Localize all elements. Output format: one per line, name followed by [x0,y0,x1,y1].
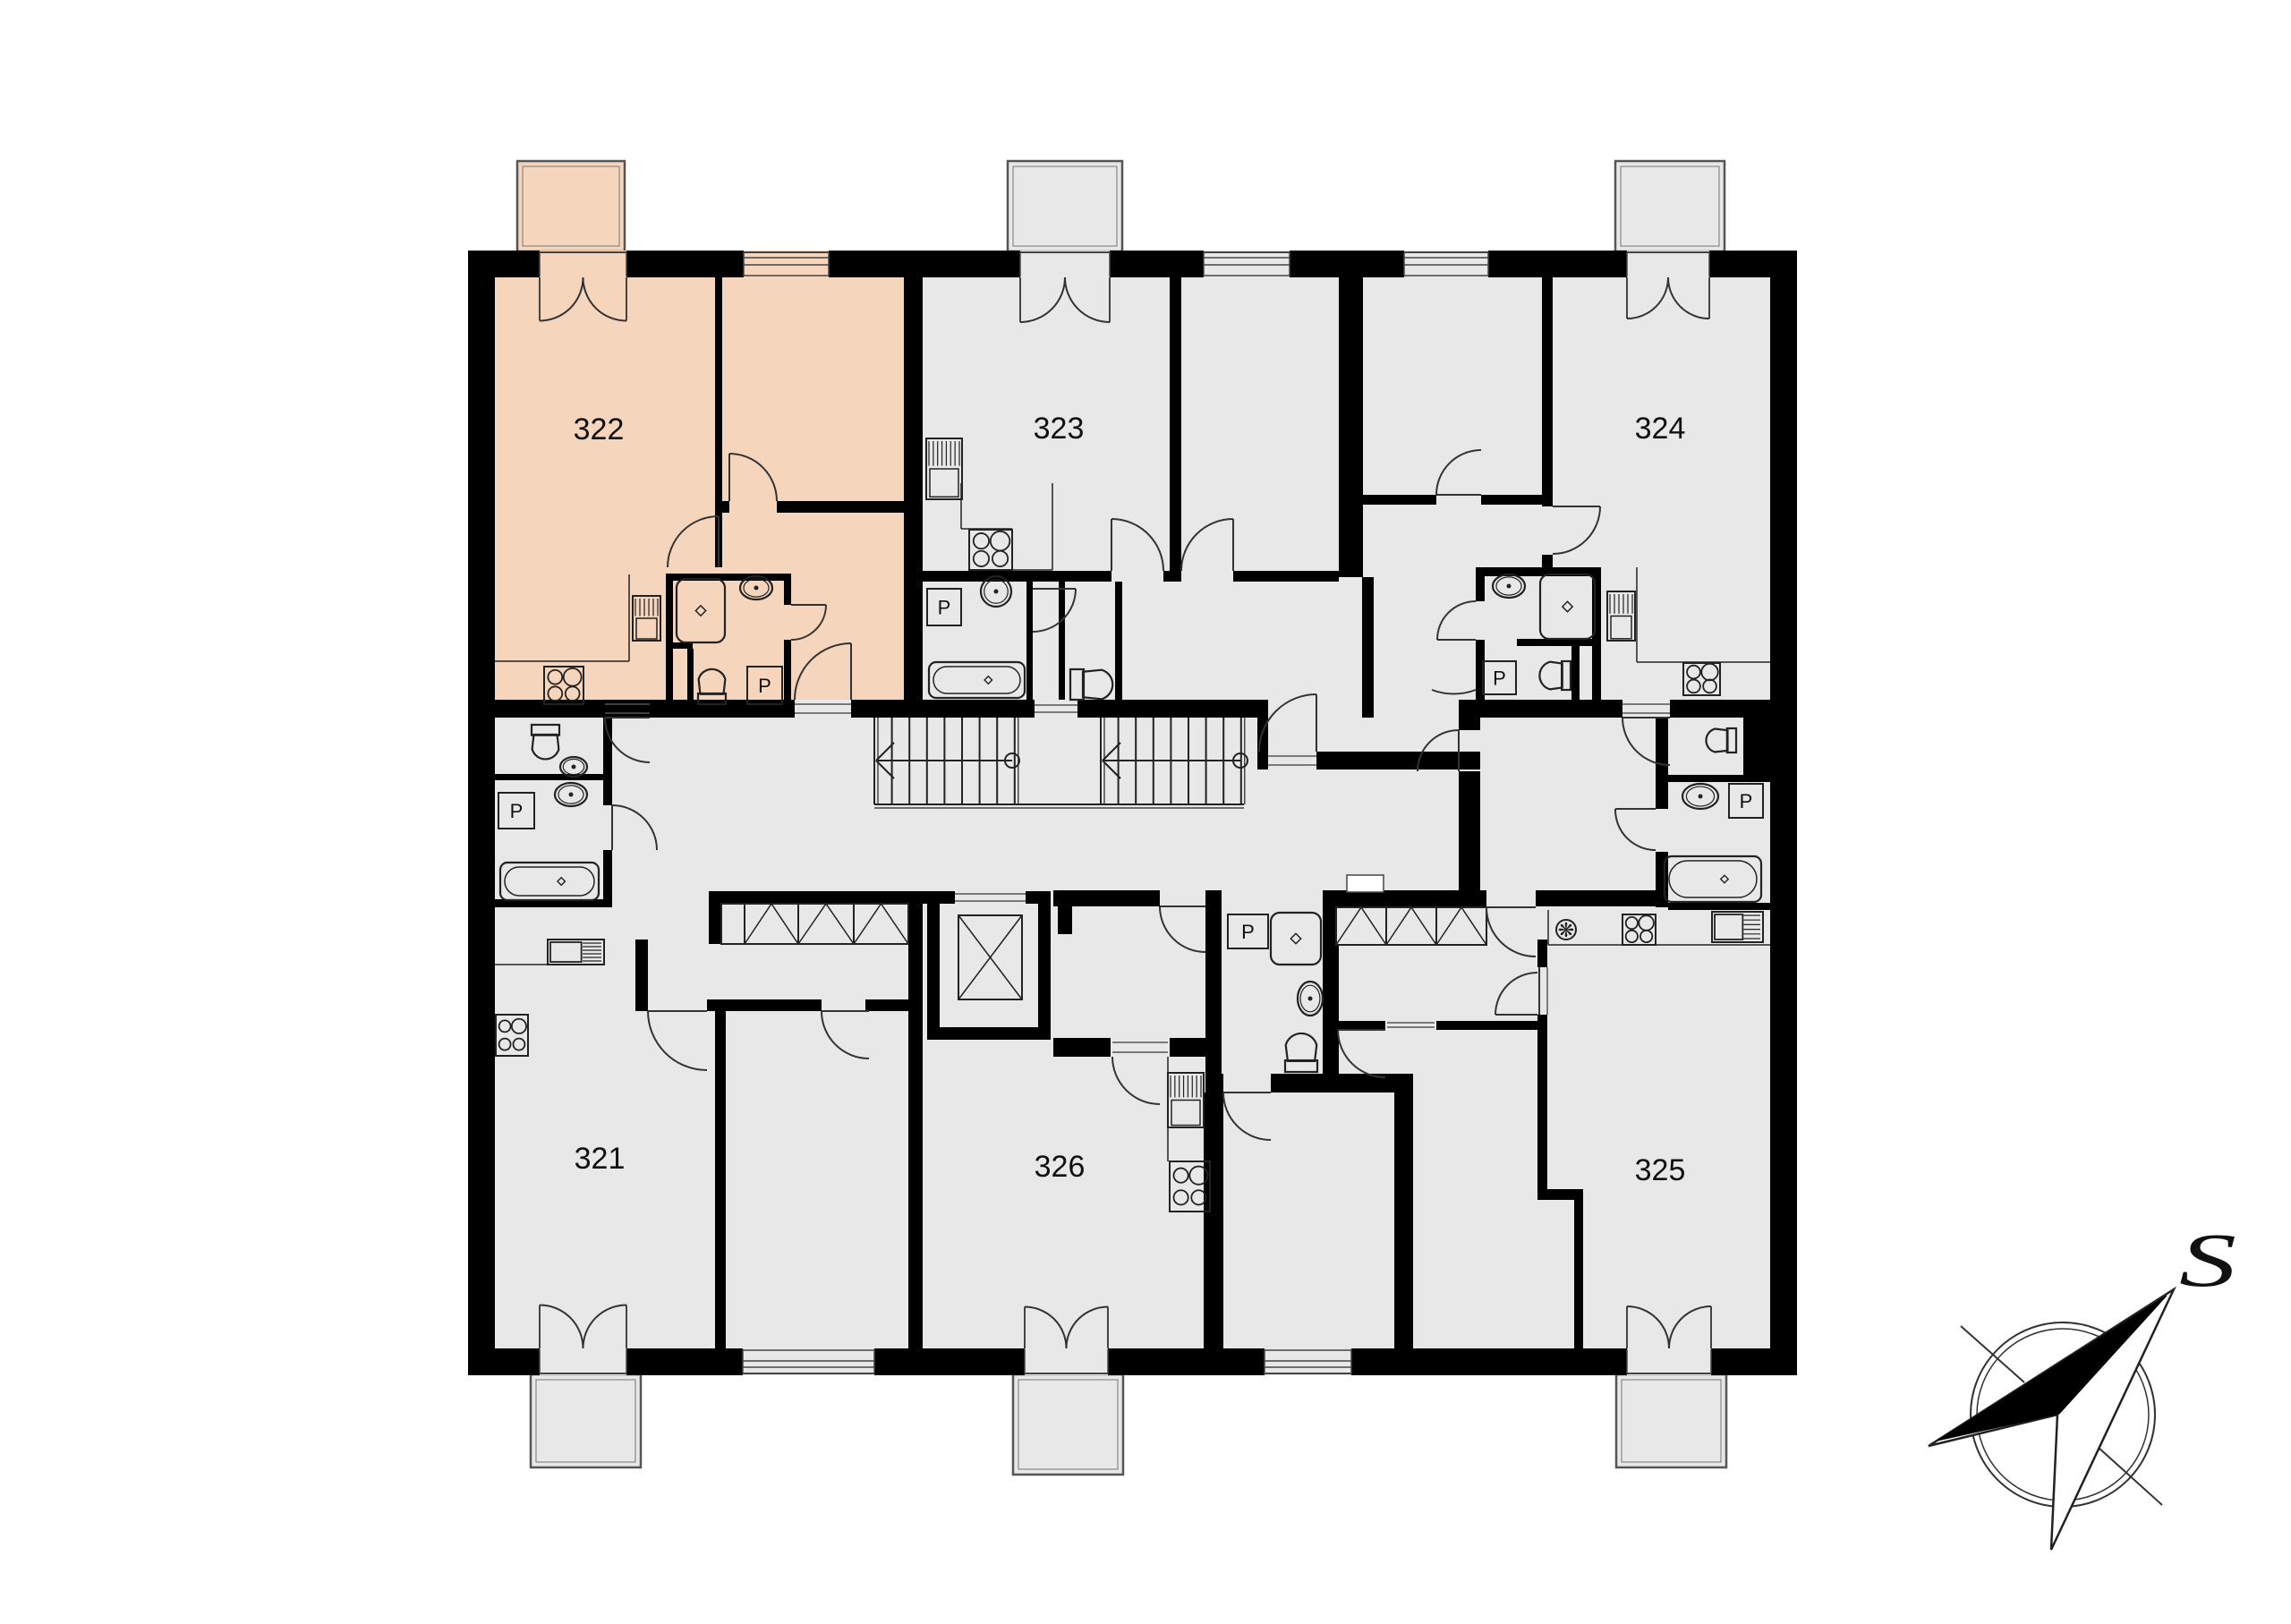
svg-text:322: 322 [574,412,625,446]
svg-text:325: 325 [1635,1153,1686,1187]
svg-text:321: 321 [575,1142,626,1176]
svg-text:323: 323 [1034,412,1085,446]
svg-text:S: S [2179,1217,2236,1303]
svg-text:P: P [938,597,951,619]
svg-text:324: 324 [1635,412,1686,446]
svg-text:P: P [510,800,524,822]
svg-text:P: P [1493,667,1506,690]
svg-text:P: P [1740,790,1753,812]
svg-text:326: 326 [1035,1150,1086,1184]
svg-text:❋: ❋ [1558,919,1574,941]
svg-text:P: P [758,675,771,697]
svg-text:P: P [1241,921,1255,943]
